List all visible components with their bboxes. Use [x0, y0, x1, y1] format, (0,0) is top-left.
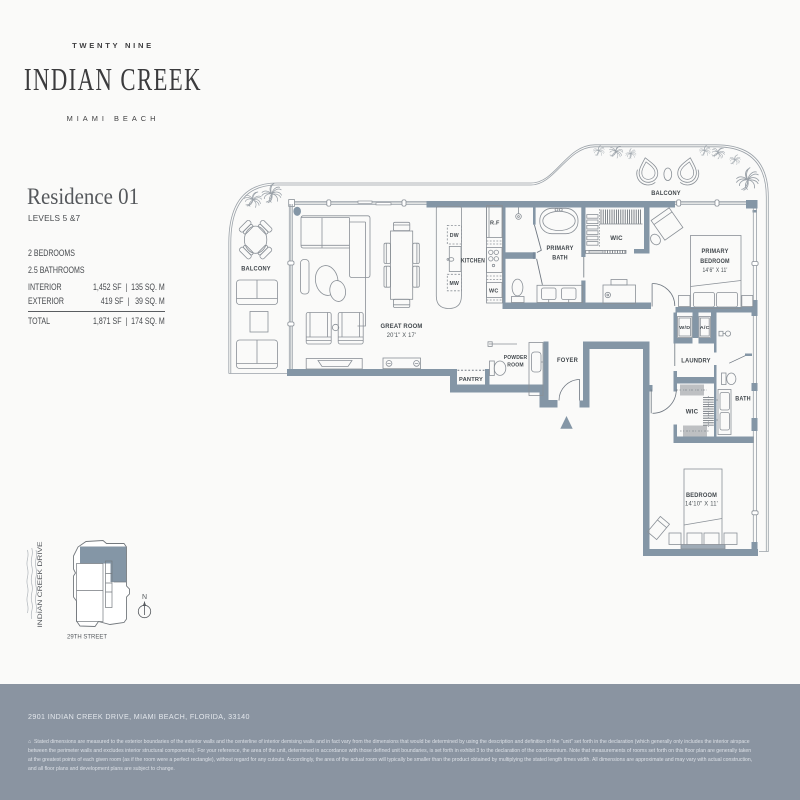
svg-text:MW: MW [450, 281, 460, 287]
svg-text:R.F: R.F [490, 221, 500, 227]
svg-text:A/C: A/C [700, 325, 710, 331]
svg-text:FOYER: FOYER [557, 357, 578, 364]
svg-text:14'6" X 11': 14'6" X 11' [703, 267, 728, 274]
svg-text:N: N [142, 594, 147, 601]
svg-text:BEDROOM: BEDROOM [686, 492, 717, 499]
svg-text:14'10" X 11': 14'10" X 11' [685, 501, 718, 508]
svg-text:INDIAN CREEK DRIVE: INDIAN CREEK DRIVE [38, 542, 44, 628]
svg-text:20'1" X 17': 20'1" X 17' [387, 332, 417, 339]
svg-text:WIC: WIC [610, 235, 623, 242]
svg-text:29TH STREET: 29TH STREET [67, 634, 107, 641]
svg-text:ROOM: ROOM [507, 363, 524, 369]
svg-text:PANTRY: PANTRY [459, 377, 483, 383]
svg-text:LAUNDRY: LAUNDRY [681, 358, 711, 365]
svg-text:BATH: BATH [735, 396, 751, 403]
svg-text:PRIMARY: PRIMARY [702, 248, 729, 255]
svg-text:BALCONY: BALCONY [651, 190, 681, 197]
svg-text:DW: DW [450, 233, 459, 239]
svg-text:WIC: WIC [686, 408, 699, 415]
svg-text:BEDROOM: BEDROOM [700, 258, 730, 265]
svg-text:POWDER: POWDER [504, 355, 528, 361]
svg-text:BATH: BATH [552, 254, 568, 261]
svg-text:GREAT ROOM: GREAT ROOM [381, 323, 423, 330]
svg-text:W/D: W/D [679, 325, 690, 331]
svg-text:KITCHEN: KITCHEN [461, 258, 485, 265]
svg-text:BALCONY: BALCONY [241, 266, 271, 273]
svg-text:WC: WC [489, 289, 499, 295]
svg-text:PRIMARY: PRIMARY [547, 245, 574, 252]
